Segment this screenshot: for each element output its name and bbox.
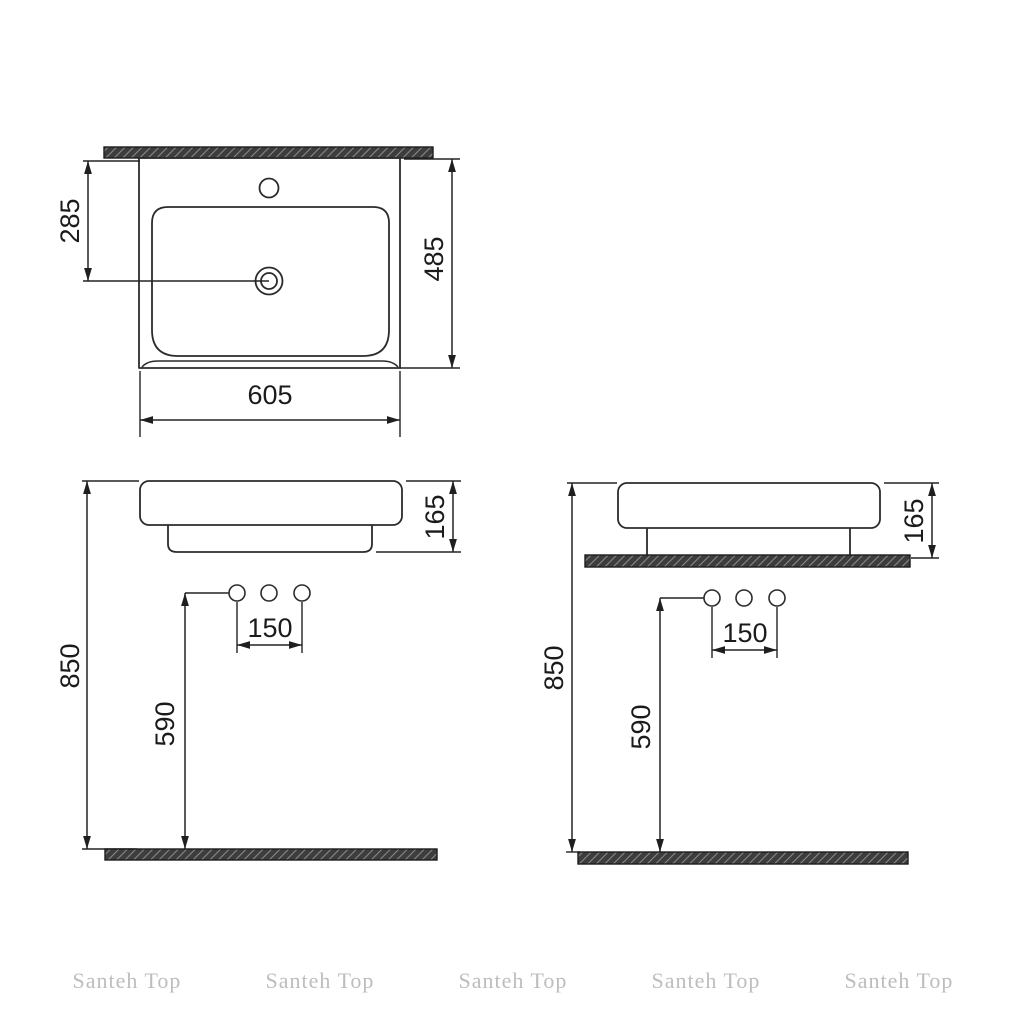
wall-hatch-bar [104,147,433,158]
outlet-hole-center [261,585,277,601]
floor-hatch-bar [578,852,908,864]
faucet-hole [260,179,279,198]
dimension-label-rim-height: 850 [539,645,569,690]
floor-hatch-bar [105,849,437,860]
watermark-text: Santeh Top [459,968,568,993]
dimension-label-body-height: 165 [420,494,450,539]
watermark-text: Santeh Top [266,968,375,993]
outlet-hole-right [294,585,310,601]
dimension-label-outlet-spacing: 150 [247,613,292,643]
outlet-hole-left [229,585,245,601]
watermark-text: Santeh Top [845,968,954,993]
drawing-canvas: 285 485 605 165 850 [0,0,1024,1024]
counter-hatch-bar [585,555,910,567]
outlet-hole-right [769,590,785,606]
front-view-on-counter: 165 850 150 590 [539,483,939,864]
outlet-hole-center [736,590,752,606]
watermark-text: Santeh Top [652,968,761,993]
basin-outer-outline [139,158,400,368]
dimension-label-rim-height: 850 [55,643,85,688]
dimension-label-drain-from-back: 285 [55,198,85,243]
technical-drawing: 285 485 605 165 850 [0,0,1024,1024]
dimension-label-depth: 485 [419,236,449,281]
basin-rim-profile [140,481,402,525]
basin-front-curve [142,361,398,367]
dimension-label-width: 605 [247,380,292,410]
dimension-label-outlet-spacing: 150 [722,618,767,648]
basin-body-profile [168,525,372,552]
watermark-row: Santeh Top Santeh Top Santeh Top Santeh … [73,968,954,993]
dimension-label-body-height: 165 [899,498,929,543]
dimension-label-outlet-height: 590 [626,704,656,749]
dimension-label-outlet-height: 590 [150,701,180,746]
watermark-text: Santeh Top [73,968,182,993]
front-view-wall-hung: 165 850 150 590 [55,481,461,860]
top-view: 285 485 605 [55,147,460,437]
outlet-hole-left [704,590,720,606]
basin-rim-profile [618,483,880,528]
